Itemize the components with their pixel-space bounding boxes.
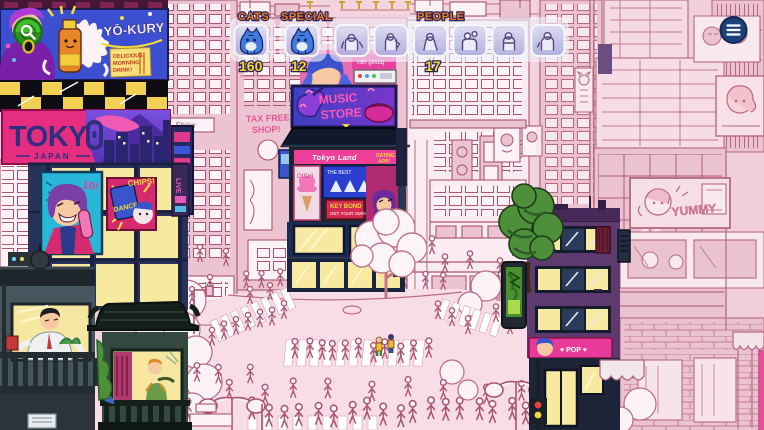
svg-text:MUSIC: MUSIC [318, 90, 358, 107]
svg-text:PEOPLE: PEOPLE [417, 11, 465, 23]
svg-text:MORNING: MORNING [113, 60, 140, 67]
svg-text:SPECIAL: SPECIAL [281, 11, 332, 23]
svg-text:Tokyo Land: Tokyo Land [312, 153, 357, 162]
svg-text:GET YOUR OWN: GET YOUR OWN [330, 211, 366, 216]
svg-text:KEY BOND: KEY BOND [330, 204, 362, 210]
svg-text:12: 12 [291, 58, 307, 74]
svg-text:LIVE: LIVE [174, 178, 181, 194]
svg-text:♥ POP ♥: ♥ POP ♥ [560, 347, 587, 354]
svg-text:SHOP!: SHOP! [252, 124, 281, 135]
svg-text:JAPAN: JAPAN [34, 152, 71, 161]
svg-text:OISHI: OISHI [297, 174, 314, 180]
svg-text:TOKY: TOKY [9, 121, 87, 153]
svg-text:17: 17 [425, 58, 441, 74]
svg-text:THE BEST: THE BEST [327, 170, 351, 176]
svg-text:DRINK!: DRINK! [113, 67, 133, 74]
svg-text:TAX FREE: TAX FREE [246, 112, 290, 124]
svg-text:APP!: APP! [378, 159, 390, 165]
svg-text:CATS: CATS [238, 11, 269, 23]
svg-text:DELICIOUS: DELICIOUS [113, 53, 143, 60]
svg-text:STORE: STORE [320, 105, 362, 122]
svg-text:160: 160 [239, 58, 263, 74]
